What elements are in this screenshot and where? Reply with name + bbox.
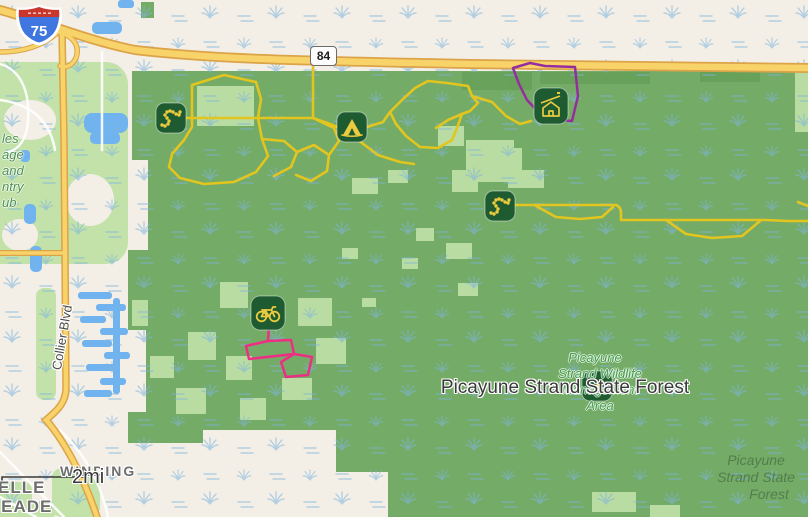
map-canvas[interactable]: 75 Picayune Strand Wildlife Management A…: [0, 0, 808, 517]
route-84-shield: 84: [310, 46, 337, 66]
interstate-75-number: 75: [31, 23, 48, 40]
marsh-symbols: [0, 0, 808, 517]
poi-icon-hidden[interactable]: [582, 371, 612, 401]
ranger-station-icon[interactable]: [534, 88, 568, 124]
state-forest-se-line2: Strand State: [698, 469, 808, 486]
state-forest-se-line3: Forest: [698, 486, 808, 503]
bike-trail-icon[interactable]: [251, 296, 285, 330]
state-forest-se-label: Picayune Strand State Forest: [698, 452, 808, 503]
trailhead-icon-east[interactable]: [485, 191, 515, 221]
campground-icon[interactable]: [337, 112, 367, 142]
route-84-number: 84: [317, 49, 330, 63]
trailhead-icon-west[interactable]: [156, 103, 186, 133]
map-graphics: 75: [0, 0, 808, 517]
state-forest-se-line1: Picayune: [698, 452, 808, 469]
